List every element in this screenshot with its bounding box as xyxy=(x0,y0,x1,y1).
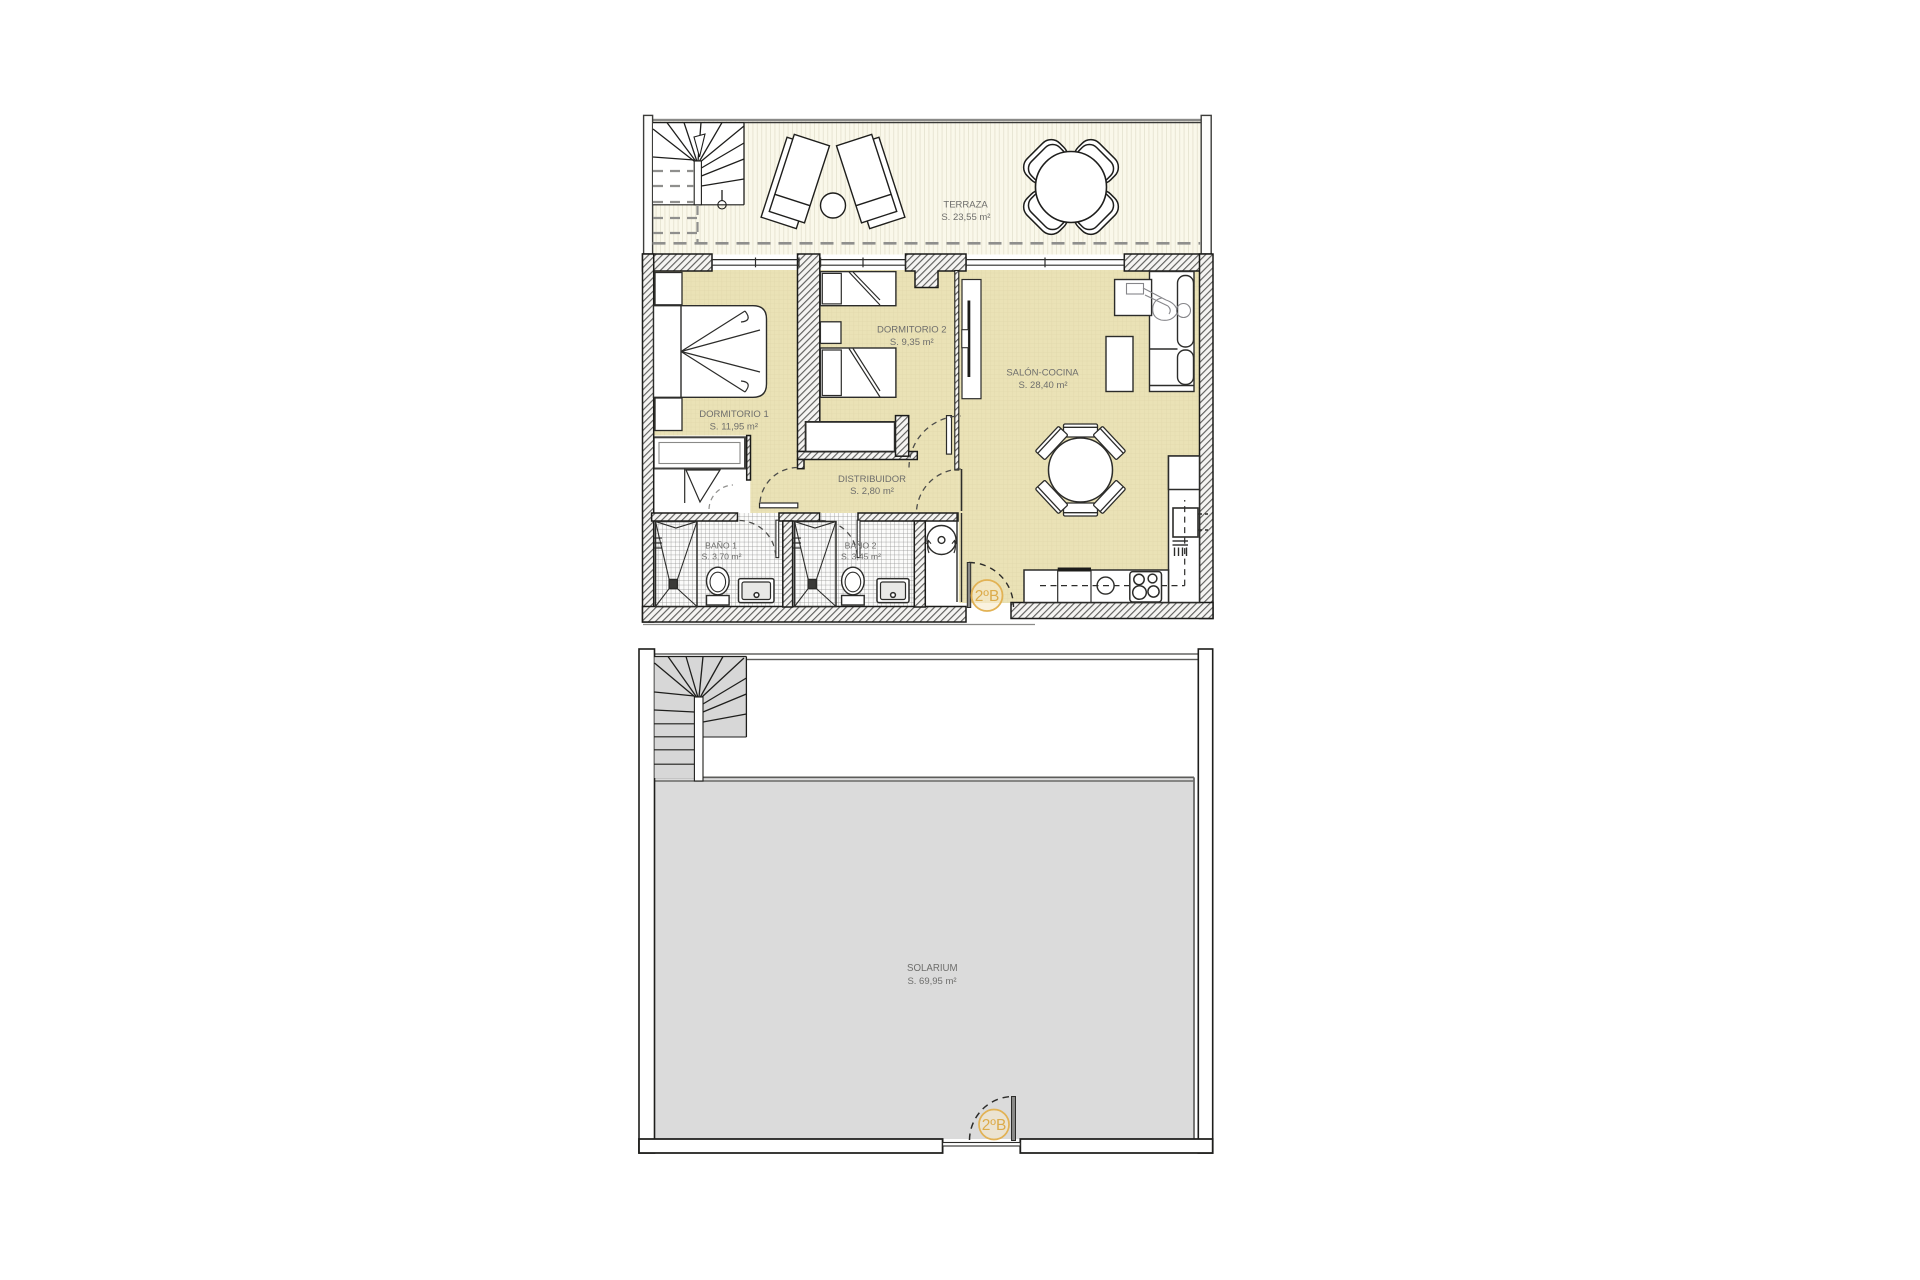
svg-text:S. 2,80 m²: S. 2,80 m² xyxy=(850,486,894,497)
svg-text:S. 28,40 m²: S. 28,40 m² xyxy=(1018,380,1067,391)
svg-text:SOLARIUM: SOLARIUM xyxy=(907,963,958,974)
svg-text:S. 23,55 m²: S. 23,55 m² xyxy=(941,212,990,223)
svg-text:S. 69,95 m²: S. 69,95 m² xyxy=(907,976,956,987)
svg-text:S. 11,95 m²: S. 11,95 m² xyxy=(710,422,758,433)
svg-text:TERRAZA: TERRAZA xyxy=(943,200,988,211)
svg-text:DISTRIBUIDOR: DISTRIBUIDOR xyxy=(838,474,906,485)
svg-text:BAÑO 1: BAÑO 1 xyxy=(705,541,737,551)
svg-text:SALÓN-COCINA: SALÓN-COCINA xyxy=(1006,368,1079,379)
svg-text:BAÑO 2: BAÑO 2 xyxy=(845,541,877,551)
svg-text:2ºB: 2ºB xyxy=(982,1117,1007,1134)
svg-text:2ºB: 2ºB xyxy=(975,588,1000,605)
svg-text:DORMITORIO 2: DORMITORIO 2 xyxy=(877,325,947,336)
svg-text:DORMITORIO 1: DORMITORIO 1 xyxy=(699,409,769,420)
svg-text:S. 9,35 m²: S. 9,35 m² xyxy=(890,337,934,348)
svg-text:S. 3,70 m²: S. 3,70 m² xyxy=(701,552,741,562)
svg-text:S. 3,45 m²: S. 3,45 m² xyxy=(841,552,881,562)
